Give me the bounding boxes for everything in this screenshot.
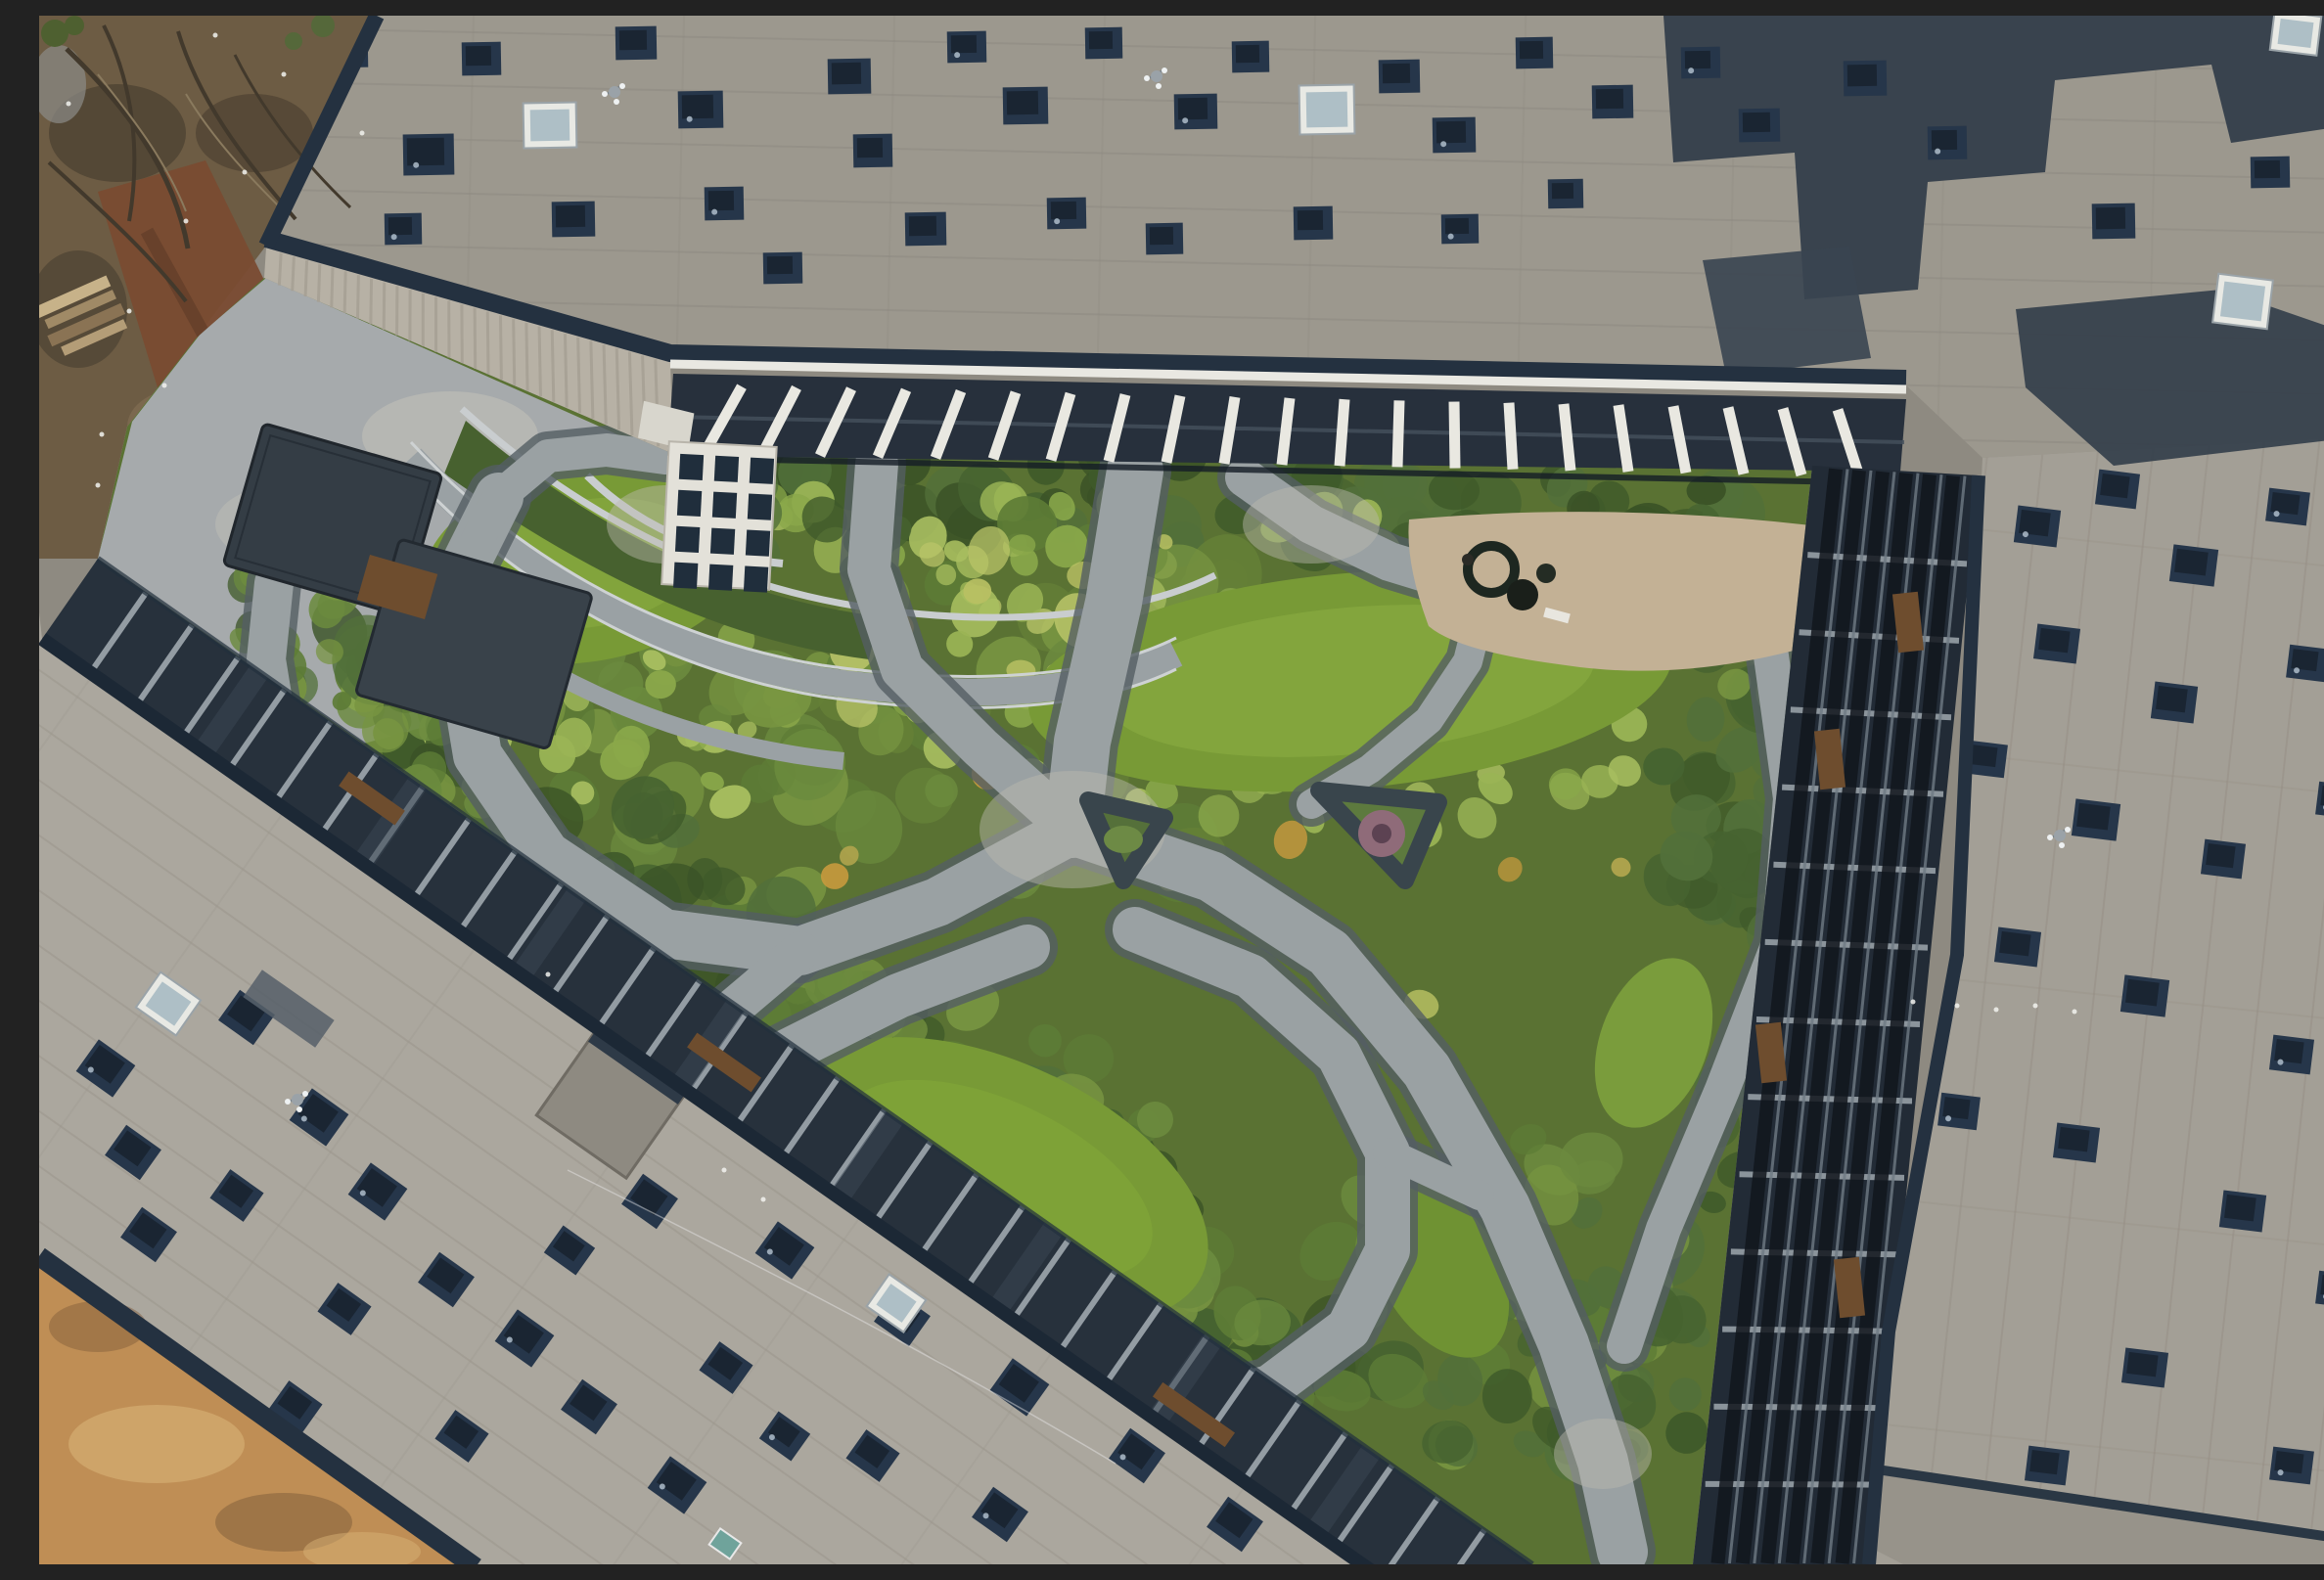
- roof-vent: [705, 187, 745, 221]
- debris-speck: [184, 219, 189, 224]
- corner-window: [710, 528, 735, 555]
- roof-vent: [2120, 974, 2169, 1016]
- debris-speck: [2073, 1010, 2077, 1015]
- top-facade-mullions: [1509, 403, 1513, 470]
- roof-vent: [2092, 203, 2136, 240]
- roof-vent: [1739, 109, 1781, 143]
- roof-vent: [1592, 85, 1634, 119]
- boardwalk-planks: [539, 327, 540, 397]
- aerial-photo: Top-down drone photo of a modern residen…: [39, 16, 2324, 1564]
- roof-skylight: [2270, 16, 2322, 56]
- debris-speck: [127, 309, 132, 314]
- play-structure: [1507, 579, 1538, 610]
- roof-vent: [1085, 27, 1123, 60]
- roof-vent: [2014, 505, 2061, 547]
- roof-vent: [1441, 214, 1480, 245]
- debris-speck: [360, 131, 365, 136]
- boardwalk-planks: [526, 323, 527, 391]
- roof-vent: [1174, 94, 1218, 130]
- roof-vent: [1994, 926, 2041, 967]
- top-facade-mullions: [1340, 399, 1344, 466]
- debris-speck: [100, 432, 105, 437]
- roof-vent: [763, 252, 803, 285]
- roof-vent: [2286, 645, 2324, 683]
- roof-vent: [1294, 206, 1334, 241]
- corner-window: [675, 526, 700, 553]
- roof-vent: [947, 31, 987, 64]
- debris-speck: [243, 170, 248, 175]
- bush: [65, 16, 84, 35]
- roof-vent: [828, 59, 872, 95]
- roof-vent: [1232, 41, 1270, 73]
- bush: [285, 32, 302, 50]
- roof-skylight: [2212, 274, 2273, 329]
- boardwalk-planks: [514, 319, 515, 385]
- roof-vent: [2033, 623, 2080, 663]
- corner-window: [679, 454, 704, 480]
- roof-vent: [2151, 681, 2198, 723]
- bush: [41, 20, 68, 47]
- corner-window: [677, 490, 702, 517]
- boardwalk-planks: [357, 275, 358, 319]
- debris-speck: [1911, 1000, 1916, 1005]
- roof-vent: [2219, 1190, 2266, 1232]
- roof-vent: [462, 42, 502, 76]
- top-facade-mullions: [1397, 400, 1399, 467]
- roof-vent: [1937, 1093, 1981, 1131]
- roof-vent: [1516, 37, 1554, 69]
- roof-vent: [1928, 126, 1968, 160]
- roof-vent: [1433, 117, 1477, 154]
- roof-vent: [1047, 198, 1087, 230]
- roof-skylight: [524, 103, 577, 149]
- debris-speck: [162, 384, 167, 388]
- corner-window: [744, 565, 768, 592]
- boardwalk-planks: [578, 338, 580, 413]
- roof-vent: [2025, 1446, 2070, 1486]
- roof-vent: [552, 202, 596, 238]
- roof-vent: [1681, 47, 1721, 79]
- roof-vent: [2169, 544, 2218, 586]
- debris-speck: [761, 1197, 766, 1202]
- boardwalk-planks: [344, 271, 345, 313]
- roof-vent: [2269, 1447, 2314, 1485]
- boardwalk-planks: [318, 264, 319, 302]
- roof-vent: [2269, 1035, 2314, 1075]
- boardwalk-planks: [475, 308, 476, 369]
- debris-speck: [96, 483, 101, 488]
- roof-vent: [2121, 1347, 2168, 1387]
- roof-vent: [2251, 157, 2291, 189]
- corner-window: [746, 529, 770, 556]
- boardwalk-planks: [500, 315, 501, 380]
- path-light-patch: [1554, 1419, 1652, 1489]
- debris-speck: [1955, 1004, 1960, 1009]
- debris-speck: [282, 72, 287, 77]
- roof-vent: [1003, 87, 1049, 125]
- roof-vent: [2095, 470, 2140, 510]
- play-detail: [1462, 554, 1474, 565]
- roof-vent: [2053, 1122, 2100, 1162]
- roof-vent: [853, 134, 893, 168]
- corner-window: [673, 563, 698, 589]
- debris-speck: [722, 1168, 727, 1173]
- roof-vent: [1379, 60, 1421, 94]
- play-structure: [1536, 564, 1556, 583]
- debris-speck: [2033, 1004, 2038, 1009]
- roof-vent: [385, 213, 423, 246]
- roof-vent: [1844, 61, 1888, 97]
- roof-vent: [403, 134, 455, 176]
- debris-speck: [546, 972, 551, 977]
- boardwalk-planks: [371, 279, 372, 324]
- boardwalk-planks: [591, 341, 593, 419]
- boardwalk-planks: [552, 330, 554, 402]
- boardwalk-planks: [293, 256, 295, 291]
- corner-window: [714, 456, 739, 482]
- roof-vent: [615, 26, 658, 61]
- boardwalk-planks: [487, 312, 488, 375]
- debris-speck: [213, 33, 218, 38]
- boardwalk-planks: [279, 253, 281, 286]
- roof-shadow-step: [1703, 247, 1871, 376]
- debris-speck: [1994, 1008, 1999, 1013]
- roof-vent: [905, 212, 947, 247]
- boardwalk-planks: [384, 283, 385, 330]
- top-facade-mullions: [1564, 404, 1571, 471]
- roof-vent: [2201, 839, 2246, 880]
- boardwalk-planks: [332, 268, 333, 308]
- roof-vent: [1146, 223, 1184, 255]
- corner-window: [712, 492, 737, 519]
- boardwalk-planks: [305, 260, 307, 296]
- shrub-blob: [1482, 1369, 1532, 1423]
- roof-vent: [1548, 179, 1584, 209]
- shrub-blob: [1009, 534, 1035, 556]
- roof-vent: [678, 91, 724, 129]
- corner-window: [750, 458, 774, 484]
- top-facade-mullions: [1454, 402, 1455, 469]
- corner-window: [708, 564, 733, 591]
- corner-window: [748, 494, 772, 520]
- path-light-patch: [1243, 485, 1380, 564]
- debris-speck: [67, 102, 71, 107]
- aerial-photo-canvas: [39, 16, 2324, 1564]
- roof-skylight: [1299, 85, 1355, 135]
- boardwalk-planks: [565, 334, 567, 408]
- roof-vent: [2072, 798, 2120, 840]
- roof-vent: [2265, 488, 2310, 526]
